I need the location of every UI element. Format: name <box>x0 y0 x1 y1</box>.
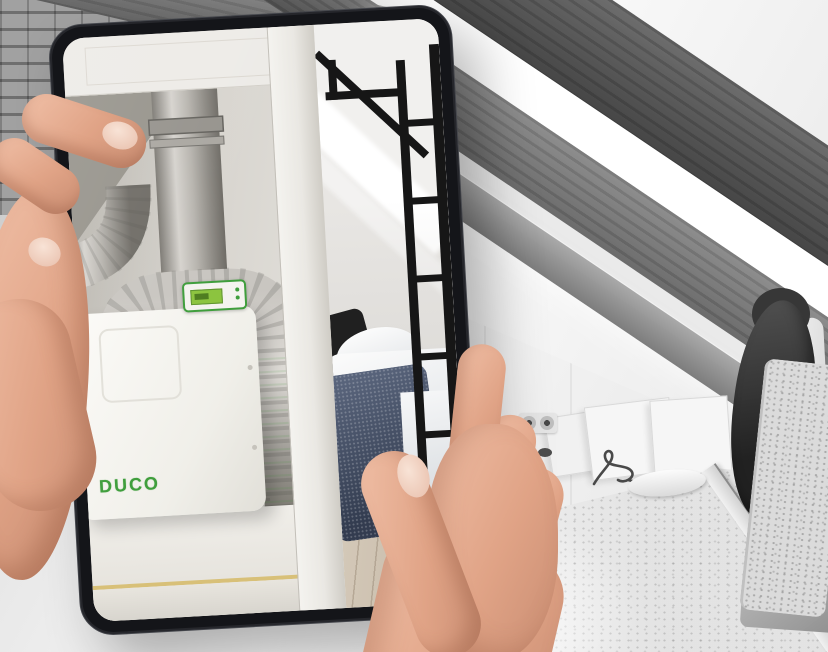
ladder-rung <box>407 118 434 126</box>
display-led <box>236 295 240 299</box>
brand-logo: DUCO <box>98 473 160 497</box>
display-led <box>235 287 239 291</box>
closet-top-frame <box>85 36 299 86</box>
ladder-rung <box>416 274 443 282</box>
unit-door-outline <box>98 325 182 403</box>
display-pixels <box>194 293 208 300</box>
unit-screw <box>247 365 252 370</box>
unit-control-display <box>182 279 248 313</box>
ladder-rung <box>420 352 447 360</box>
unit-screw <box>252 445 257 450</box>
scene: DUCO <box>0 0 828 652</box>
leaning-panel <box>649 395 732 478</box>
ladder-rung <box>424 430 451 438</box>
ventilation-unit: DUCO <box>69 305 266 521</box>
